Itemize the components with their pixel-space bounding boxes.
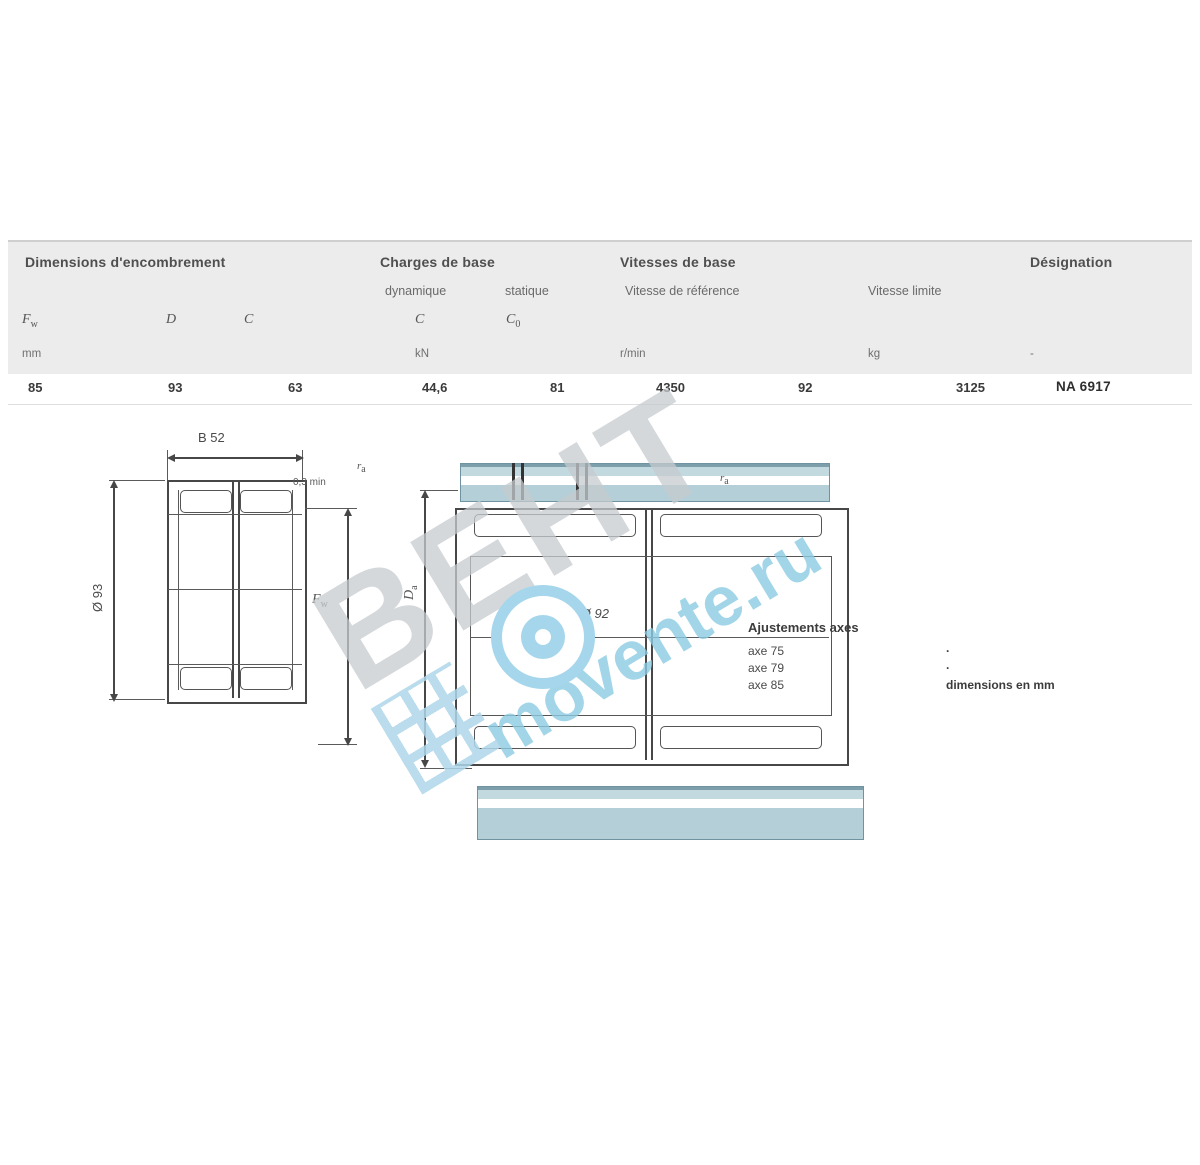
unit-mm: mm <box>22 348 41 360</box>
cell-c: 63 <box>288 380 302 395</box>
roller-top-right <box>240 490 292 513</box>
symbol-d: D <box>166 312 176 328</box>
watermark-circle-inner <box>521 615 565 659</box>
symbol-fw: Fw <box>22 312 38 330</box>
fits-note-row-label: axe 79 <box>748 661 784 675</box>
subheader-ref-speed: Vitesse de référence <box>625 284 739 298</box>
dimension-arrow-right <box>296 454 304 462</box>
subheader-lim-speed: Vitesse limite <box>868 284 941 298</box>
cell-fw: 85 <box>28 380 42 395</box>
datasheet-page: Dimensions d'encombrement Charges de bas… <box>0 0 1200 1165</box>
column-group-designation: Désignation <box>1030 254 1112 270</box>
dimension-arrow-left <box>167 454 175 462</box>
dimension-arrow-up <box>344 508 352 516</box>
housing-bar <box>477 786 864 840</box>
ra-label: ra <box>357 460 366 475</box>
subheader-static: statique <box>505 284 549 298</box>
dimension-arrow-down <box>110 694 118 702</box>
unit-kg: kg <box>868 348 880 360</box>
chamfer-label: 0,3 min <box>293 477 326 488</box>
unit-dash: - <box>1030 348 1034 360</box>
fits-note-row-value: dimensions en mm <box>946 678 1055 692</box>
dimension-line <box>113 486 115 696</box>
column-group-speeds: Vitesses de base <box>620 254 736 270</box>
width-dimension-label: B 52 <box>198 430 225 445</box>
subheader-dynamic: dynamique <box>385 284 446 298</box>
roller-bottom-right <box>240 667 292 690</box>
dimension-line <box>174 457 296 459</box>
column-group-dimensions: Dimensions d'encombrement <box>25 254 225 270</box>
fits-note-row-label: axe 85 <box>748 678 784 692</box>
cage-line <box>178 490 179 690</box>
fits-note-row-label: axe 75 <box>748 644 784 658</box>
cell-c0: 81 <box>550 380 564 395</box>
fits-note-row-value: · <box>946 661 950 675</box>
symbol-c-dyn: C <box>415 312 424 328</box>
symbol-c: C <box>244 312 253 328</box>
roller-bottom-right <box>660 726 822 749</box>
watermark-circle-core <box>535 629 551 645</box>
race-line <box>168 514 302 515</box>
fits-note-title: Ajustements axes <box>748 620 859 635</box>
cell-c-dyn: 44,6 <box>422 380 447 395</box>
cell-lim-speed: 92 <box>798 380 812 395</box>
unit-kn: kN <box>415 348 429 360</box>
watermark-circle-logo <box>491 585 595 689</box>
symbol-c0: C0 <box>506 312 520 330</box>
outer-diameter-label: Ø 93 <box>90 584 105 612</box>
mid-line <box>168 589 302 590</box>
column-group-loads: Charges de base <box>380 254 495 270</box>
fits-note-row-value: · <box>946 644 950 658</box>
roller-bottom-left <box>180 667 232 690</box>
dimension-arrow-up <box>110 480 118 488</box>
roller-top-left <box>180 490 232 513</box>
dimension-arrow-down <box>344 738 352 746</box>
cell-designation: NA 6917 <box>1056 379 1111 394</box>
cell-d: 93 <box>168 380 182 395</box>
race-line <box>168 664 302 665</box>
unit-rpm: r/min <box>620 348 646 360</box>
cell-mass: 3125 <box>956 380 985 395</box>
cage-line <box>292 490 293 690</box>
